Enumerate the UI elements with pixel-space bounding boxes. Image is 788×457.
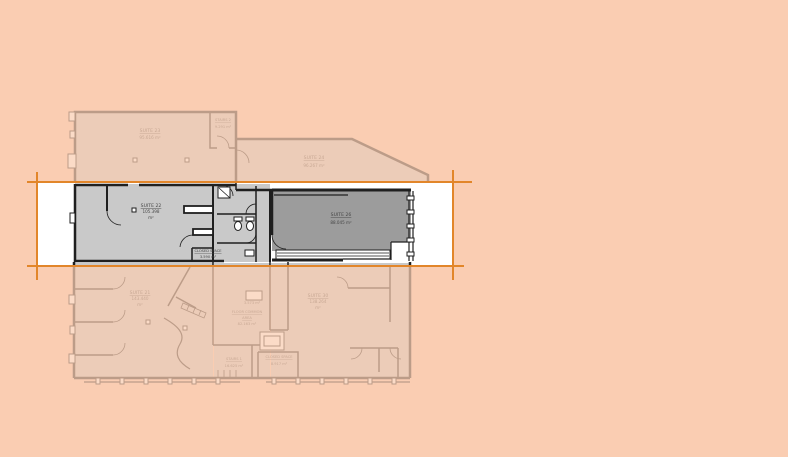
- closed-space-a-label: CLOSED SPACE: [194, 249, 222, 253]
- floorplan-viewer: SUITE 23 95.616 m² STAIRS 2 9.291 m² SUI…: [0, 0, 788, 457]
- floorplan-image: SUITE 23 95.616 m² STAIRS 2 9.291 m² SUI…: [0, 0, 788, 457]
- window-tick: [407, 210, 414, 214]
- pilaster: [70, 213, 75, 223]
- suite-26-label: SUITE 26: [331, 212, 352, 218]
- suite-26-counter: [276, 250, 390, 259]
- suite-22-closet: [184, 206, 213, 213]
- toilet-icon: [234, 217, 242, 231]
- suite-22-closet: [193, 229, 213, 235]
- suite-26-area: 88.045 m²: [330, 220, 352, 225]
- sink-icon: [245, 250, 254, 256]
- window-tick: [407, 224, 414, 228]
- window-tick: [407, 252, 414, 256]
- suite-22-area: 105.398: [143, 209, 160, 214]
- window-tick: [407, 196, 414, 200]
- toilet-icon: [246, 217, 254, 231]
- column: [132, 208, 136, 212]
- suite-22-area-unit: m²: [148, 215, 154, 220]
- closed-space-a-area: 3.590 m²: [200, 255, 217, 259]
- window-tick: [407, 238, 414, 242]
